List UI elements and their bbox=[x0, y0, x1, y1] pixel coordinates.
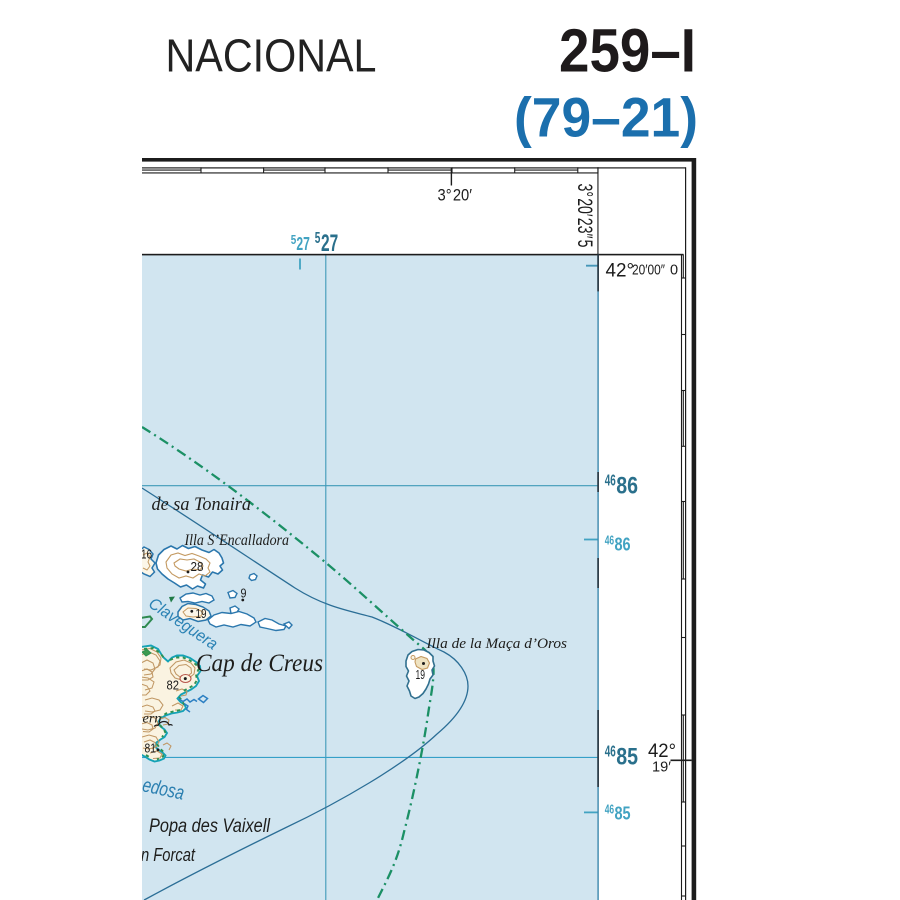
svg-text:ern: ern bbox=[143, 712, 162, 727]
svg-text:86: 86 bbox=[616, 472, 638, 499]
svg-text:n Forcat: n Forcat bbox=[141, 845, 196, 865]
svg-text:46: 46 bbox=[605, 533, 614, 547]
svg-text:19: 19 bbox=[196, 607, 207, 621]
svg-text:27: 27 bbox=[296, 233, 310, 254]
svg-text:19: 19 bbox=[416, 668, 426, 682]
svg-text:46: 46 bbox=[605, 472, 616, 489]
svg-text:19′: 19′ bbox=[652, 760, 671, 776]
svg-text:(79–21): (79–21) bbox=[514, 85, 698, 148]
svg-text:85: 85 bbox=[615, 803, 631, 824]
svg-text:Illa de la Maça d’Oros: Illa de la Maça d’Oros bbox=[425, 636, 567, 652]
svg-text:16: 16 bbox=[141, 548, 152, 562]
svg-text:46: 46 bbox=[605, 744, 616, 761]
svg-text:5: 5 bbox=[315, 230, 321, 247]
svg-text:81: 81 bbox=[145, 742, 157, 756]
svg-text:27: 27 bbox=[321, 230, 338, 257]
svg-text:3° 20′: 3° 20′ bbox=[438, 186, 473, 205]
svg-text:42: 42 bbox=[606, 260, 627, 281]
svg-text:46: 46 bbox=[605, 803, 614, 817]
svg-text:9: 9 bbox=[241, 587, 247, 601]
svg-text:28: 28 bbox=[191, 560, 204, 574]
svg-text:82: 82 bbox=[167, 679, 180, 693]
svg-text:Cap de Creus: Cap de Creus bbox=[196, 650, 323, 677]
svg-text:20′00″: 20′00″ bbox=[632, 263, 665, 279]
svg-text:Illa S’Encalladora: Illa S’Encalladora bbox=[184, 532, 290, 549]
svg-text:0: 0 bbox=[670, 263, 678, 279]
svg-text:de sa Tonaira: de sa Tonaira bbox=[152, 495, 252, 515]
svg-text:85: 85 bbox=[616, 744, 638, 771]
svg-text:Popa des Vaixell: Popa des Vaixell bbox=[149, 815, 271, 837]
svg-text:3° 20′ 23″ 5: 3° 20′ 23″ 5 bbox=[573, 184, 596, 248]
svg-text:86: 86 bbox=[615, 533, 631, 554]
svg-text:NACIONAL: NACIONAL bbox=[166, 30, 377, 82]
svg-text:259–I: 259–I bbox=[559, 17, 696, 85]
